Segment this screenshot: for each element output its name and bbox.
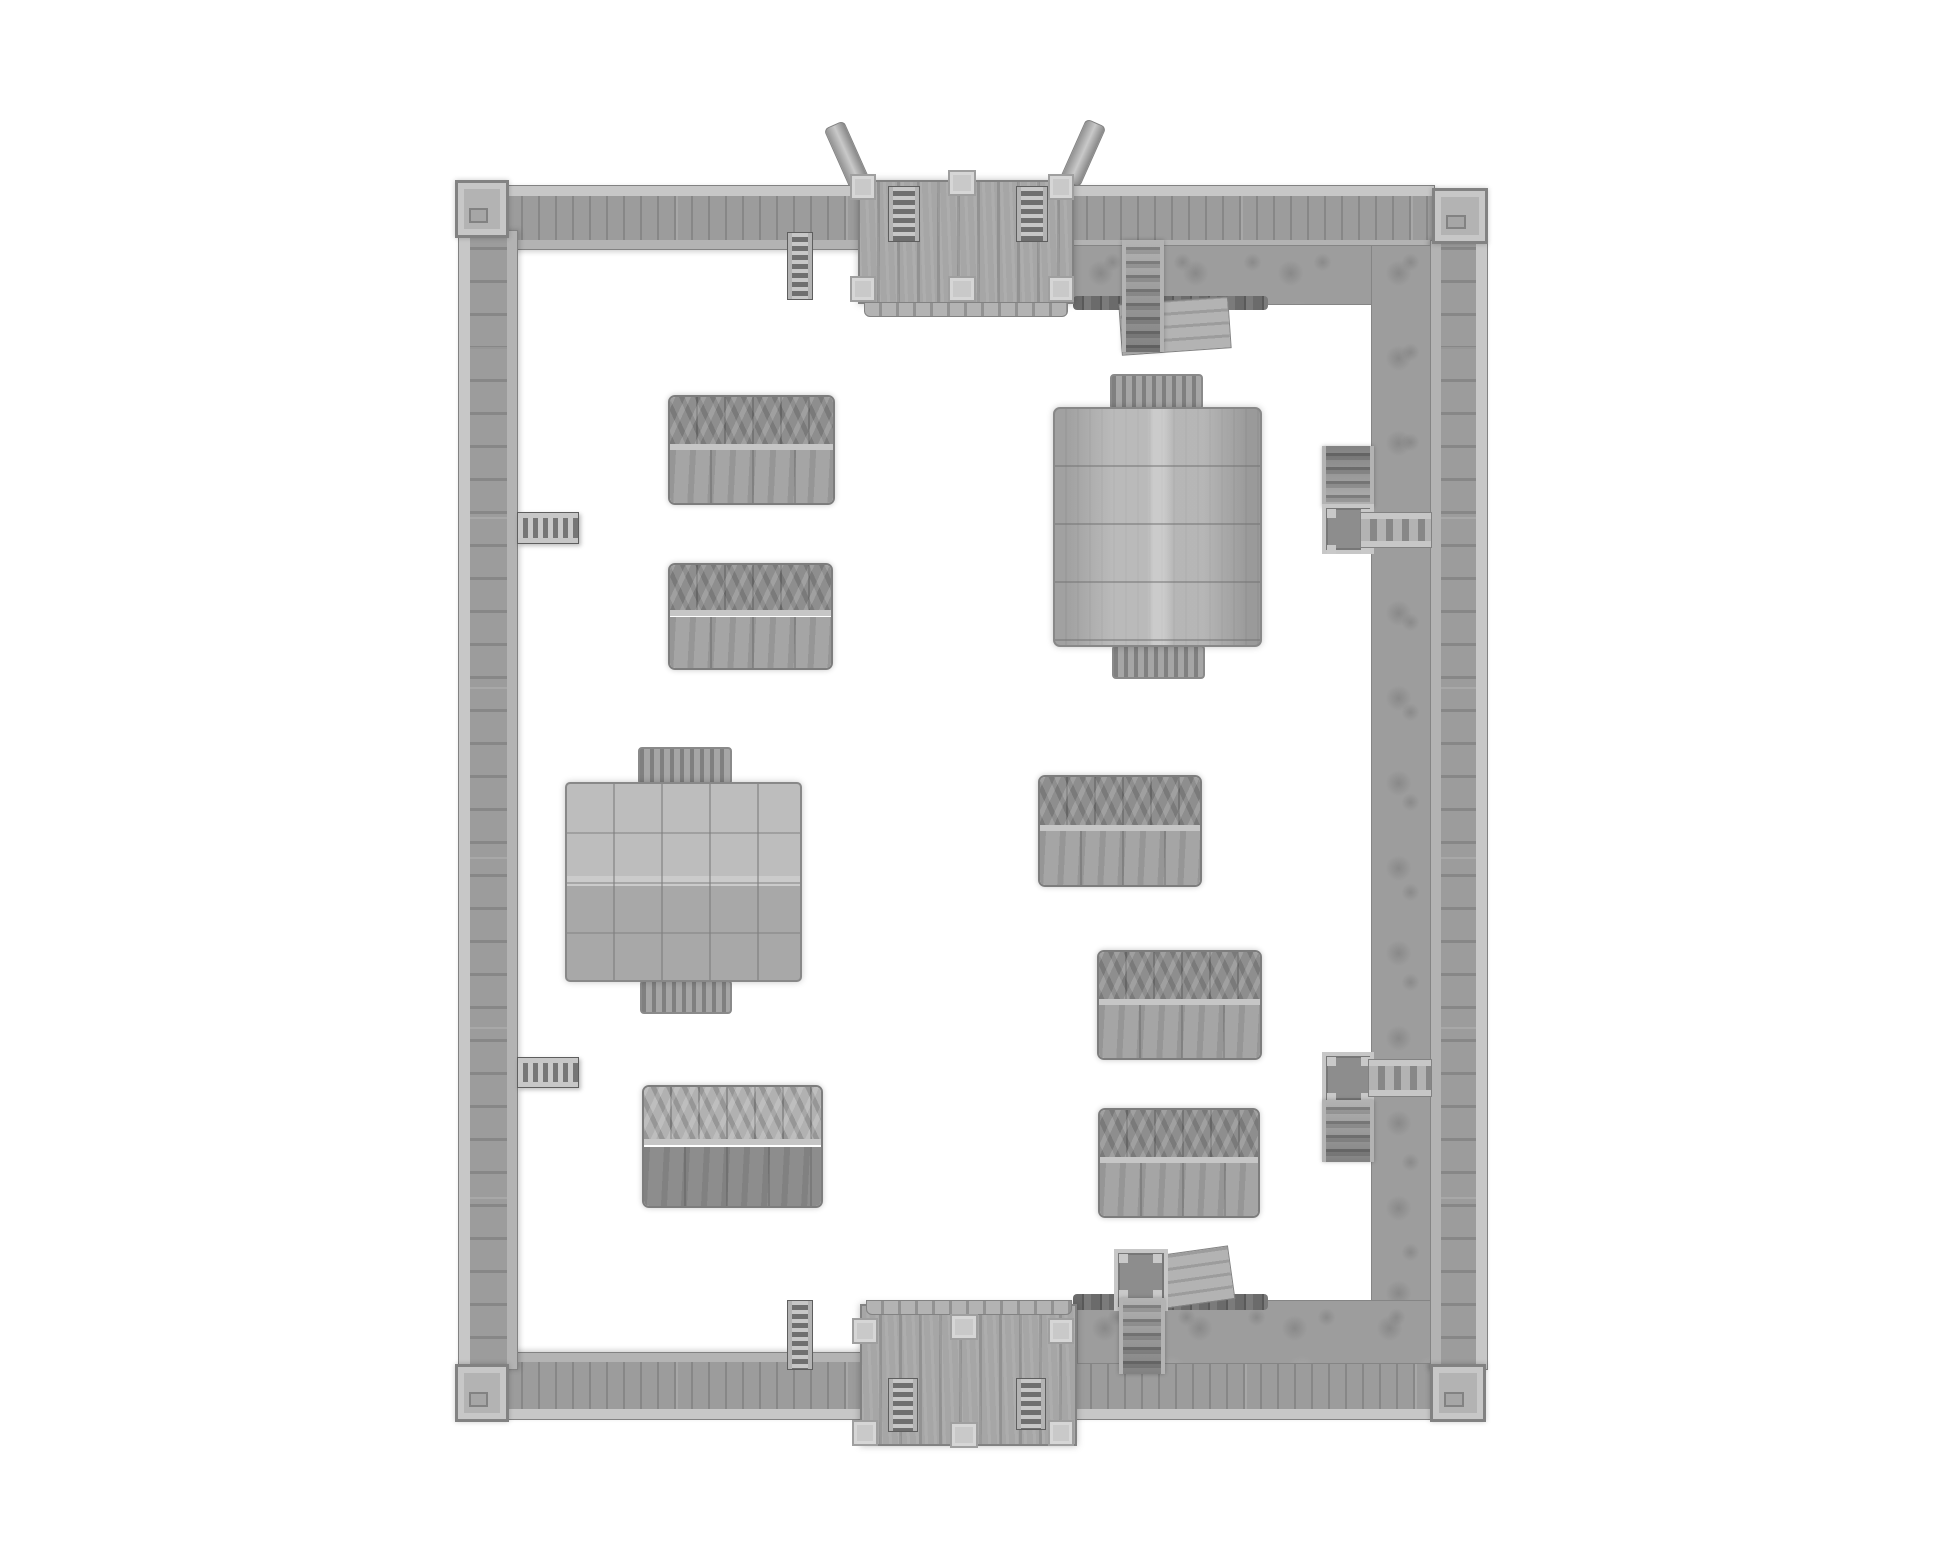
marquee-flap-south xyxy=(640,980,732,1014)
south-gate-post-nw xyxy=(852,1318,878,1344)
west-wall xyxy=(458,230,518,1370)
south-gatehouse-fringe xyxy=(866,1300,1072,1315)
east-stair-upper-bridge xyxy=(1360,512,1432,548)
south-gate-ladder-west xyxy=(888,1378,918,1432)
south-gate-post-s xyxy=(950,1422,978,1448)
east-wall xyxy=(1430,240,1488,1370)
north-gate-ladder-west xyxy=(888,186,920,242)
north-gate-post-se xyxy=(1048,276,1074,302)
north-rampart-stair xyxy=(1122,240,1164,352)
south-gate-post-ne xyxy=(1048,1318,1074,1344)
tent-northwest-1 xyxy=(668,395,835,505)
tent-northwest-2 xyxy=(668,563,833,670)
north-gate-ladder-east xyxy=(1016,186,1048,242)
pavilion-flap-south xyxy=(1112,645,1205,679)
corner-tower-southwest xyxy=(455,1364,509,1422)
north-gatehouse-fringe xyxy=(864,302,1068,317)
west-wall-stair-upper xyxy=(517,512,579,544)
north-gate-post-s xyxy=(948,276,976,302)
marquee-flap-north xyxy=(638,747,732,785)
south-gate-ladder-east xyxy=(1016,1378,1046,1430)
marquee-tent-west xyxy=(565,782,802,982)
east-stair-upper-steps xyxy=(1322,446,1374,508)
north-gate-post-nw xyxy=(850,174,876,200)
east-stair-lower-bridge xyxy=(1368,1059,1432,1097)
corner-tower-northeast xyxy=(1432,188,1488,244)
north-gate-post-sw xyxy=(850,276,876,302)
pavilion-tent-east xyxy=(1053,407,1262,647)
north-wall-ladder xyxy=(787,232,813,300)
tent-east-middle xyxy=(1038,775,1202,887)
pavilion-flap-north xyxy=(1110,374,1203,410)
south-wall-ladder xyxy=(787,1300,813,1370)
south-gate-post-n xyxy=(950,1314,978,1340)
tent-southwest xyxy=(642,1085,823,1208)
render-viewport xyxy=(0,0,1946,1557)
south-gate-post-se xyxy=(1048,1420,1074,1446)
tent-east-lower-2 xyxy=(1098,1108,1260,1218)
north-gate-post-n xyxy=(948,170,976,196)
south-gate-post-sw xyxy=(852,1420,878,1446)
corner-tower-southeast xyxy=(1430,1364,1486,1422)
corner-tower-northwest xyxy=(455,180,509,238)
south-rampart-ramp xyxy=(1159,1245,1236,1308)
south-rampart-stair xyxy=(1119,1298,1165,1374)
rampart-dirt-east xyxy=(1371,245,1431,1360)
north-gate-post-ne xyxy=(1048,174,1074,200)
west-wall-stair-lower xyxy=(517,1057,579,1088)
east-stair-lower-landing xyxy=(1322,1052,1374,1104)
east-stair-lower-steps xyxy=(1322,1100,1374,1162)
tent-east-lower-1 xyxy=(1097,950,1262,1060)
